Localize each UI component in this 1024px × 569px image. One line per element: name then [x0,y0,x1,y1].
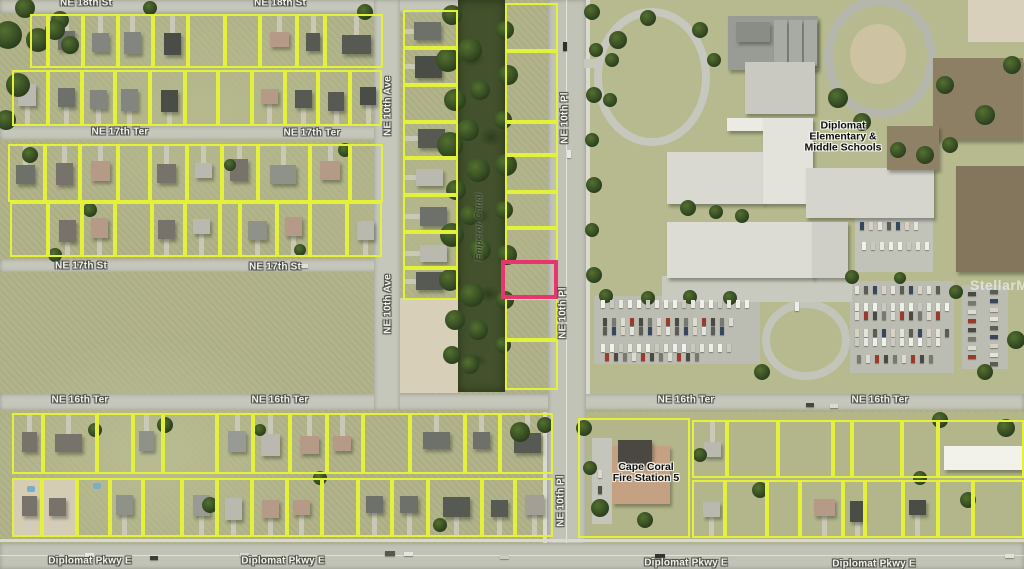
parcel-outline [48,202,82,257]
parked-car [628,300,632,308]
parcel-outline [110,478,143,537]
loop-entrance-road [584,59,600,68]
parked-car [936,286,940,294]
building-roof [774,20,787,66]
parked-car [873,303,877,311]
parcel-outline [727,420,778,478]
parked-car [664,300,668,308]
parcel-outline [505,340,558,390]
tree-canopy [0,21,22,49]
parked-car [718,300,722,308]
tree-canopy [457,119,479,141]
street-label: NE 10th Ave [383,274,394,334]
tree-canopy [1007,331,1024,349]
parked-car [882,303,886,311]
tree-canopy [585,133,599,147]
vehicle [385,551,395,556]
parcel-outline [260,14,297,68]
parked-car [693,327,697,335]
parked-car [855,303,859,311]
parked-car [945,329,949,337]
parcel-outline [8,144,45,202]
tree-canopy [466,158,490,182]
parcel-outline [350,144,383,202]
parked-car [693,318,697,326]
parked-car [866,355,870,363]
parked-car [709,344,713,352]
parked-car [871,242,875,250]
parcel-outline [692,420,727,478]
parcel-outline [843,480,865,538]
parked-car [864,312,868,320]
tree-canopy [754,364,770,380]
parcel-outline [318,70,350,126]
parked-car [900,312,904,320]
parcel-outline [347,202,382,257]
tree-canopy [603,93,617,107]
parcel-outline [152,202,185,257]
parked-car [918,286,922,294]
parked-car [893,355,897,363]
street-label: Diplomat Pkwy E [832,559,916,569]
parked-car [909,329,913,337]
parked-car [736,300,740,308]
tree-canopy [707,53,721,67]
street-label: NE 18th St [254,0,306,9]
parked-car [727,344,731,352]
parcel-outline [290,413,327,474]
parked-car [882,338,886,346]
parked-car [990,317,998,321]
parcel-outline [118,144,150,202]
parked-car [666,318,670,326]
terrain-patch [968,0,1024,42]
parcel-outline [220,202,240,257]
tree-canopy [828,88,848,108]
parked-car [911,355,915,363]
parcel-outline [285,70,318,126]
parked-car [990,299,998,303]
vehicle [598,470,602,478]
parked-car [864,329,868,337]
tree-canopy [1003,56,1021,74]
tree-canopy [584,4,600,20]
parked-car [902,355,906,363]
parked-car [896,222,900,230]
street-label: NE 17th Ter [283,128,340,139]
parked-car [968,346,976,350]
parked-car [682,300,686,308]
parcel-outline [240,202,277,257]
parked-car [855,338,859,346]
parked-car [889,242,893,250]
parcel-outline [42,478,77,537]
tree-canopy [468,320,488,340]
parked-car [637,300,641,308]
parked-car [702,327,706,335]
tree-canopy [692,22,708,38]
parked-car [695,353,699,361]
stellar-mls-watermark: StellarMLS [970,277,1024,293]
parked-car [603,327,607,335]
parcel-outline [350,70,382,126]
school-label-line3: Middle Schools [804,143,881,154]
parked-car [857,355,861,363]
parked-car [745,300,749,308]
parked-car [945,303,949,311]
parcel-outline [83,14,118,68]
parcel-outline [505,155,558,192]
parcel-outline [253,413,290,474]
parked-car [900,329,904,337]
parked-car [918,312,922,320]
parked-car [968,355,976,359]
parked-car [909,303,913,311]
lane-line [566,0,567,543]
parked-car [990,344,998,348]
parked-car [929,355,933,363]
tree-canopy [461,356,479,374]
parked-car [655,344,659,352]
tree-canopy [942,137,958,153]
parcel-outline [767,480,800,538]
parked-car [727,300,731,308]
parked-car [630,327,634,335]
parking-pavement [855,212,933,272]
tree-canopy [936,76,954,94]
parcel-outline [153,14,188,68]
parked-car [691,344,695,352]
parcel-outline [217,413,253,474]
parcel-outline [505,3,558,51]
parked-car [927,303,931,311]
parked-car [887,222,891,230]
parked-car [720,327,724,335]
tree-canopy [458,38,482,62]
street-label: NE 10th Ave [383,76,394,136]
parked-car [927,338,931,346]
parcel-outline [48,70,82,126]
tree-canopy [640,10,656,26]
parked-car [990,335,998,339]
parked-car [612,318,616,326]
parcel-outline [938,480,973,538]
parked-car [968,328,976,332]
parcel-outline [403,48,458,85]
parked-car [637,344,641,352]
parked-car [657,318,661,326]
parked-car [691,300,695,308]
parcel-outline [12,478,42,537]
tree-canopy [586,267,602,283]
parked-car [873,312,877,320]
parked-car [632,353,636,361]
parked-car [610,344,614,352]
aerial-parcel-map[interactable]: Diplomat Elementary & Middle Schools Cap… [0,0,1024,569]
parked-car [686,353,690,361]
parcel-outline [322,478,358,537]
parked-car [682,344,686,352]
parcel-outline [465,413,500,474]
building-roof [812,222,848,278]
parcel-outline [115,202,152,257]
parked-car [878,222,882,230]
parked-car [936,329,940,337]
tree-canopy [143,1,157,15]
parked-car [664,344,668,352]
parked-car [729,318,733,326]
tree-canopy [916,146,934,164]
school-label: Diplomat Elementary & Middle Schools [804,121,881,154]
street-label: NE 18th St [60,0,112,9]
parked-car [884,355,888,363]
tree-canopy [977,364,993,380]
parked-car [882,286,886,294]
vehicle [567,150,571,158]
parcel-outline [403,268,458,300]
parcel-outline [185,70,218,126]
parked-car [873,286,877,294]
parcel-outline [287,478,322,537]
parcel-outline [115,70,150,126]
parked-car [914,222,918,230]
parked-car [623,353,627,361]
canal-label: Emperor Canal [474,193,485,261]
parked-car [862,242,866,250]
tree-canopy [460,283,484,307]
parked-car [927,329,931,337]
parked-car [605,353,609,361]
tree-canopy [845,270,859,284]
parked-car [659,353,663,361]
parked-car [882,312,886,320]
street-label: Diplomat Pkwy E [241,556,325,567]
parcel-outline [482,478,515,537]
parked-car [677,353,681,361]
parked-car [711,318,715,326]
parcel-outline [12,413,43,474]
street-label: NE 16th Ter [251,395,308,406]
parcel-outline [217,478,252,537]
street-label: NE 16th Ter [657,395,714,406]
parcel-outline [118,14,153,68]
parked-car [891,338,895,346]
parcel-outline [187,144,222,202]
parcel-outline [725,480,767,538]
parcel-outline [225,14,260,68]
parcel-outline [403,10,458,48]
parcel-outline [12,70,48,126]
building-roof [745,62,815,114]
parked-car [648,327,652,335]
vehicle [806,403,814,407]
parked-car [619,344,623,352]
track-infield-dirt [850,24,906,84]
parked-car [936,312,940,320]
parcel-outline [185,202,220,257]
tree-canopy [890,142,906,158]
parcel-outline [403,232,458,268]
parked-car [927,286,931,294]
parcel-outline [310,202,347,257]
street-label: NE 17th St [249,262,301,273]
parked-car [918,329,922,337]
parked-car [918,338,922,346]
parked-car [628,344,632,352]
parcel-outline [80,144,118,202]
parked-car [898,242,902,250]
parcel-outline [392,478,428,537]
parked-car [990,353,998,357]
parcel-outline [82,202,115,257]
parcel-outline [133,413,163,474]
parked-car [666,327,670,335]
parked-car [968,337,976,341]
parked-car [936,338,940,346]
parcel-outline [515,478,553,537]
parcel-outline [778,420,833,478]
sidewalk [0,539,1024,542]
parked-car [968,301,976,305]
tree-canopy [735,209,749,223]
street-label: Diplomat Pkwy E [48,556,132,567]
parked-car [612,327,616,335]
tree-canopy [585,223,599,237]
parked-car [646,344,650,352]
parked-car [855,312,859,320]
tree-canopy [443,346,461,364]
parked-car [873,329,877,337]
parked-car [614,353,618,361]
parcel-outline [222,144,258,202]
vehicle [795,302,799,311]
parked-car [920,355,924,363]
parcel-outline [505,228,558,262]
street-label: NE 10th Pl [556,475,567,526]
tree-canopy [589,43,603,57]
parked-car [855,329,859,337]
parked-car [882,329,886,337]
tree-canopy [586,87,602,103]
parked-car [891,329,895,337]
parcel-outline [852,420,902,478]
parked-car [990,308,998,312]
parked-car [907,242,911,250]
parked-car [650,353,654,361]
parked-car [601,300,605,308]
building-roof [667,222,814,278]
parked-car [968,310,976,314]
parked-car [990,326,998,330]
tree-canopy [605,53,619,67]
parcel-outline [82,70,115,126]
building-roof [806,168,934,218]
tree-canopy [445,310,465,330]
parked-car [700,344,704,352]
fire-station-label: Cape Coral Fire Station 5 [613,462,680,484]
parcel-outline [410,413,465,474]
street-label: Diplomat Pkwy E [644,558,728,569]
street-label: NE 17th Ter [91,127,148,138]
vehicle [500,555,509,559]
parked-car [880,242,884,250]
building-roof [736,22,770,42]
vehicle [300,264,308,268]
parked-car [630,318,634,326]
parked-car [900,303,904,311]
parcel-outline [800,480,843,538]
parked-car [968,319,976,323]
parked-car [918,303,922,311]
parcel-outline [902,420,938,478]
parcel-outline [143,478,182,537]
parcel-outline [30,14,48,68]
parked-car [925,242,929,250]
parcel-outline [403,195,458,232]
street-label: NE 10th Pl [558,287,569,338]
parked-car [718,344,722,352]
parcel-outline [327,413,363,474]
vehicle [830,404,838,408]
parcel-outline [150,144,187,202]
parcel-outline [77,478,110,537]
parcel-outline [48,14,83,68]
parked-car [639,327,643,335]
tree-canopy [949,285,963,299]
parcel-outline [297,14,325,68]
parked-car [873,338,877,346]
parked-car [641,353,645,361]
parked-car [905,222,909,230]
parked-car [891,312,895,320]
parcel-outline [833,420,852,478]
parked-car [869,222,873,230]
street-label: NE 17th St [55,261,107,272]
parked-car [684,318,688,326]
parcel-outline [505,51,558,122]
parked-car [909,286,913,294]
parked-car [936,303,940,311]
building-roof [789,20,802,66]
parcel-outline [163,413,217,474]
parked-car [709,300,713,308]
parcel-outline [505,298,558,340]
parcel-outline [182,478,217,537]
parcel-outline [692,480,725,538]
parked-car [927,312,931,320]
parcel-outline [10,202,48,257]
parcel-outline [43,413,97,474]
parcel-outline [403,85,458,122]
building-roof [667,152,764,204]
parked-car [610,300,614,308]
parcel-outline [973,480,1024,538]
parked-car [603,318,607,326]
parcel-outline [188,14,225,68]
vehicle [1005,554,1014,558]
parked-car [621,327,625,335]
parked-car [711,327,715,335]
parcel-outline [505,122,558,155]
vehicle [598,486,602,494]
parked-car [860,222,864,230]
parcel-outline [938,420,1024,478]
parked-car [655,300,659,308]
tree-canopy [975,105,995,125]
parked-car [864,286,868,294]
parked-car [648,318,652,326]
parked-car [673,344,677,352]
